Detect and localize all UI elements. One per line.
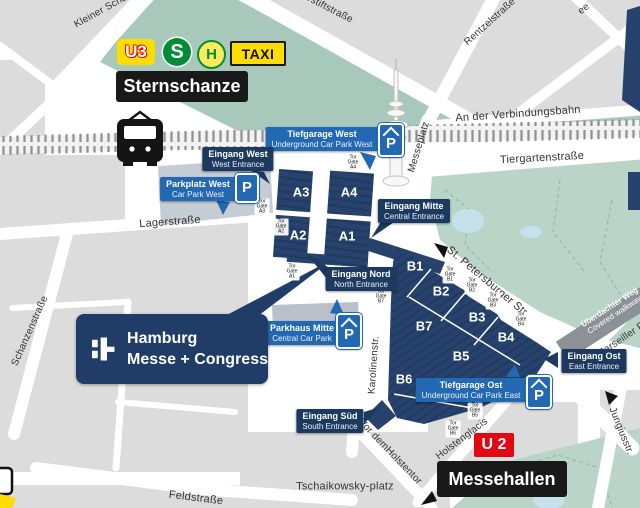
sbahn-badge: S	[163, 38, 191, 66]
hall-b6: B6	[396, 372, 413, 387]
hall-b3: B3	[469, 310, 486, 325]
gate-marker-a2: TorGateA2	[274, 219, 289, 236]
train-icon	[117, 112, 163, 166]
taxi-badge: TAXI	[230, 41, 286, 66]
halls-a	[273, 167, 374, 267]
gate-marker-b3: TorGateB3	[486, 293, 501, 310]
tiefgarage-west-label: Tiefgarage WestUnderground Car Park West	[266, 127, 379, 151]
gate-marker-b6: TorGateB6	[446, 421, 461, 438]
logo-text: Hamburg Messe + Congress	[127, 328, 268, 370]
u2-line-badge: U 2	[474, 433, 514, 457]
parking-icon: P	[378, 123, 404, 157]
hall-b4: B4	[498, 330, 515, 345]
hall-b1: B1	[407, 259, 424, 274]
messe-site-map: Kleiner Schäferkamp Schröderstiftstraße …	[0, 0, 640, 508]
hamburg-messe-h-icon	[92, 327, 115, 371]
parkhaus-mitte-label: Parkhaus MitteCentral Car Park	[264, 321, 340, 345]
gate-marker-b1: TorGateB1	[443, 267, 458, 284]
hall-b5: B5	[453, 349, 470, 364]
parking-icon: P	[336, 313, 362, 349]
u3-line-badge: U3	[117, 39, 155, 65]
gate-marker-b4: TorGateB4	[514, 312, 529, 329]
hall-a4: A4	[341, 185, 358, 200]
parking-icon: P	[235, 173, 259, 203]
tschaikowskyplatz-label: Tschaikowsky-platz	[296, 482, 394, 493]
gate-marker-b2: TorGateB2	[465, 278, 480, 295]
eingang-west-label: Eingang WestWest Entrance	[202, 147, 273, 171]
hall-a3: A3	[293, 185, 310, 200]
gate-marker-b5: TorGateB5	[468, 403, 483, 420]
eingang-nord-label: Eingang NordNorth Entrance	[326, 267, 397, 291]
hall-a1: A1	[339, 229, 356, 244]
hall-a2: A2	[290, 228, 307, 243]
sternschanze-station-label: Sternschanze	[116, 71, 248, 102]
hall-b2: B2	[433, 284, 450, 299]
eingang-mitte-label: Eingang MitteCentral Entrance	[378, 199, 450, 223]
parkplatz-west-label: Parkplatz WestCar Park West	[160, 177, 236, 201]
parking-icon: P	[526, 375, 552, 409]
hall-b7: B7	[416, 319, 433, 334]
eingang-sued-label: Eingang SüdSouth Entrance	[296, 409, 363, 433]
bus-stop-badge: H	[197, 40, 226, 69]
gate-marker-b7: TorGateB7	[374, 289, 389, 306]
gate-marker-a1: TorGateA1	[285, 264, 300, 281]
gate-marker-a4: TorGateA4	[346, 155, 361, 172]
hamburg-messe-logo: Hamburg Messe + Congress	[76, 314, 268, 384]
eingang-ost-label: Eingang OstEast Entrance	[561, 349, 626, 373]
messehallen-station-label: Messehallen	[437, 461, 567, 497]
tiefgarage-ost-label: Tiefgarage OstUnderground Car Park East	[416, 378, 527, 402]
